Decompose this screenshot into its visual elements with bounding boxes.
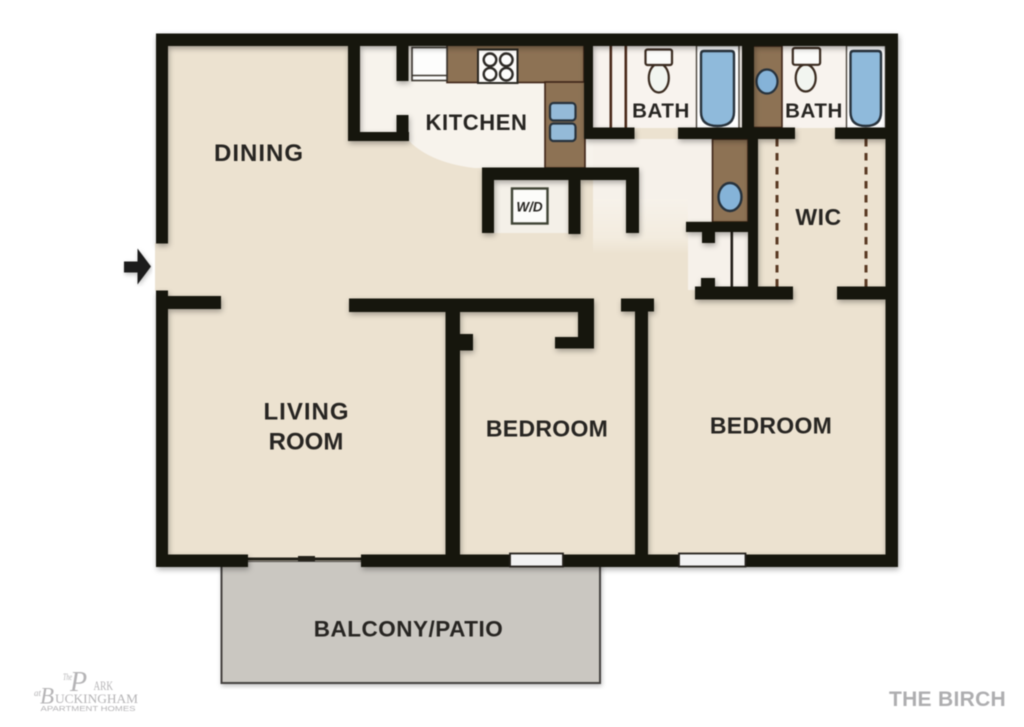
- svg-text:LIVING: LIVING: [263, 399, 349, 426]
- svg-text:B: B: [40, 684, 54, 709]
- svg-text:W/D: W/D: [516, 200, 542, 215]
- svg-text:BALCONY/PATIO: BALCONY/PATIO: [314, 617, 503, 642]
- svg-text:BEDROOM: BEDROOM: [486, 416, 608, 442]
- svg-text:THE BIRCH: THE BIRCH: [889, 688, 1006, 711]
- svg-text:ROOM: ROOM: [269, 429, 344, 456]
- svg-text:BEDROOM: BEDROOM: [710, 413, 832, 439]
- svg-text:BATH: BATH: [785, 100, 843, 123]
- svg-text:DINING: DINING: [214, 140, 304, 167]
- svg-text:BATH: BATH: [632, 100, 690, 123]
- svg-text:WIC: WIC: [795, 204, 841, 230]
- svg-text:UCKINGHAM: UCKINGHAM: [55, 691, 138, 706]
- svg-text:KITCHEN: KITCHEN: [426, 110, 528, 135]
- svg-text:APARTMENT HOMES: APARTMENT HOMES: [41, 706, 136, 713]
